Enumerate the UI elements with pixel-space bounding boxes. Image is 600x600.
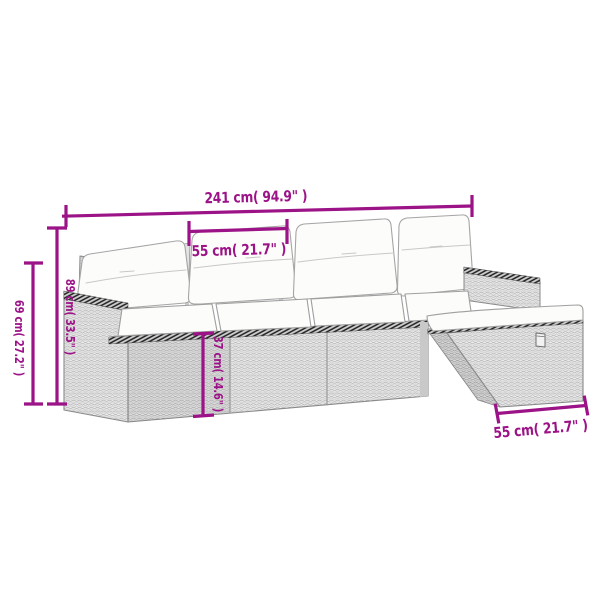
dimension-diagram: 241 cm( 94.9" ) 55 cm( 21.7" ) 89 cm( 33… — [0, 0, 600, 600]
ottoman-handle — [536, 333, 545, 347]
back-pillow-2 — [188, 226, 296, 304]
dimension-label-arm-height: 69 cm( 27.2" ) — [12, 300, 26, 376]
corner-seam — [420, 322, 428, 397]
dimension-arm-height: 69 cm( 27.2" ) — [12, 263, 43, 404]
sofa-illustration: 241 cm( 94.9" ) 55 cm( 21.7" ) 89 cm( 33… — [0, 0, 600, 600]
dimension-label-ottoman-width: 55 cm( 21.7" ) — [493, 417, 589, 443]
dimension-label-back-height: 89 cm( 33.5" ) — [63, 279, 77, 355]
seat-cushion-3 — [311, 294, 405, 326]
back-pillow-3 — [293, 219, 397, 300]
back-pillow-4 — [397, 215, 473, 296]
seat-cushion-2 — [216, 299, 311, 331]
dimension-label-seat-height: 37 cm( 14.6" ) — [211, 336, 225, 412]
dimension-label-overall-width: 241 cm( 94.9" ) — [204, 188, 307, 208]
sofa-set — [64, 215, 583, 422]
dimension-label-seat-width: 55 cm( 21.7" ) — [191, 241, 286, 261]
seat-cushion-1 — [118, 304, 217, 336]
